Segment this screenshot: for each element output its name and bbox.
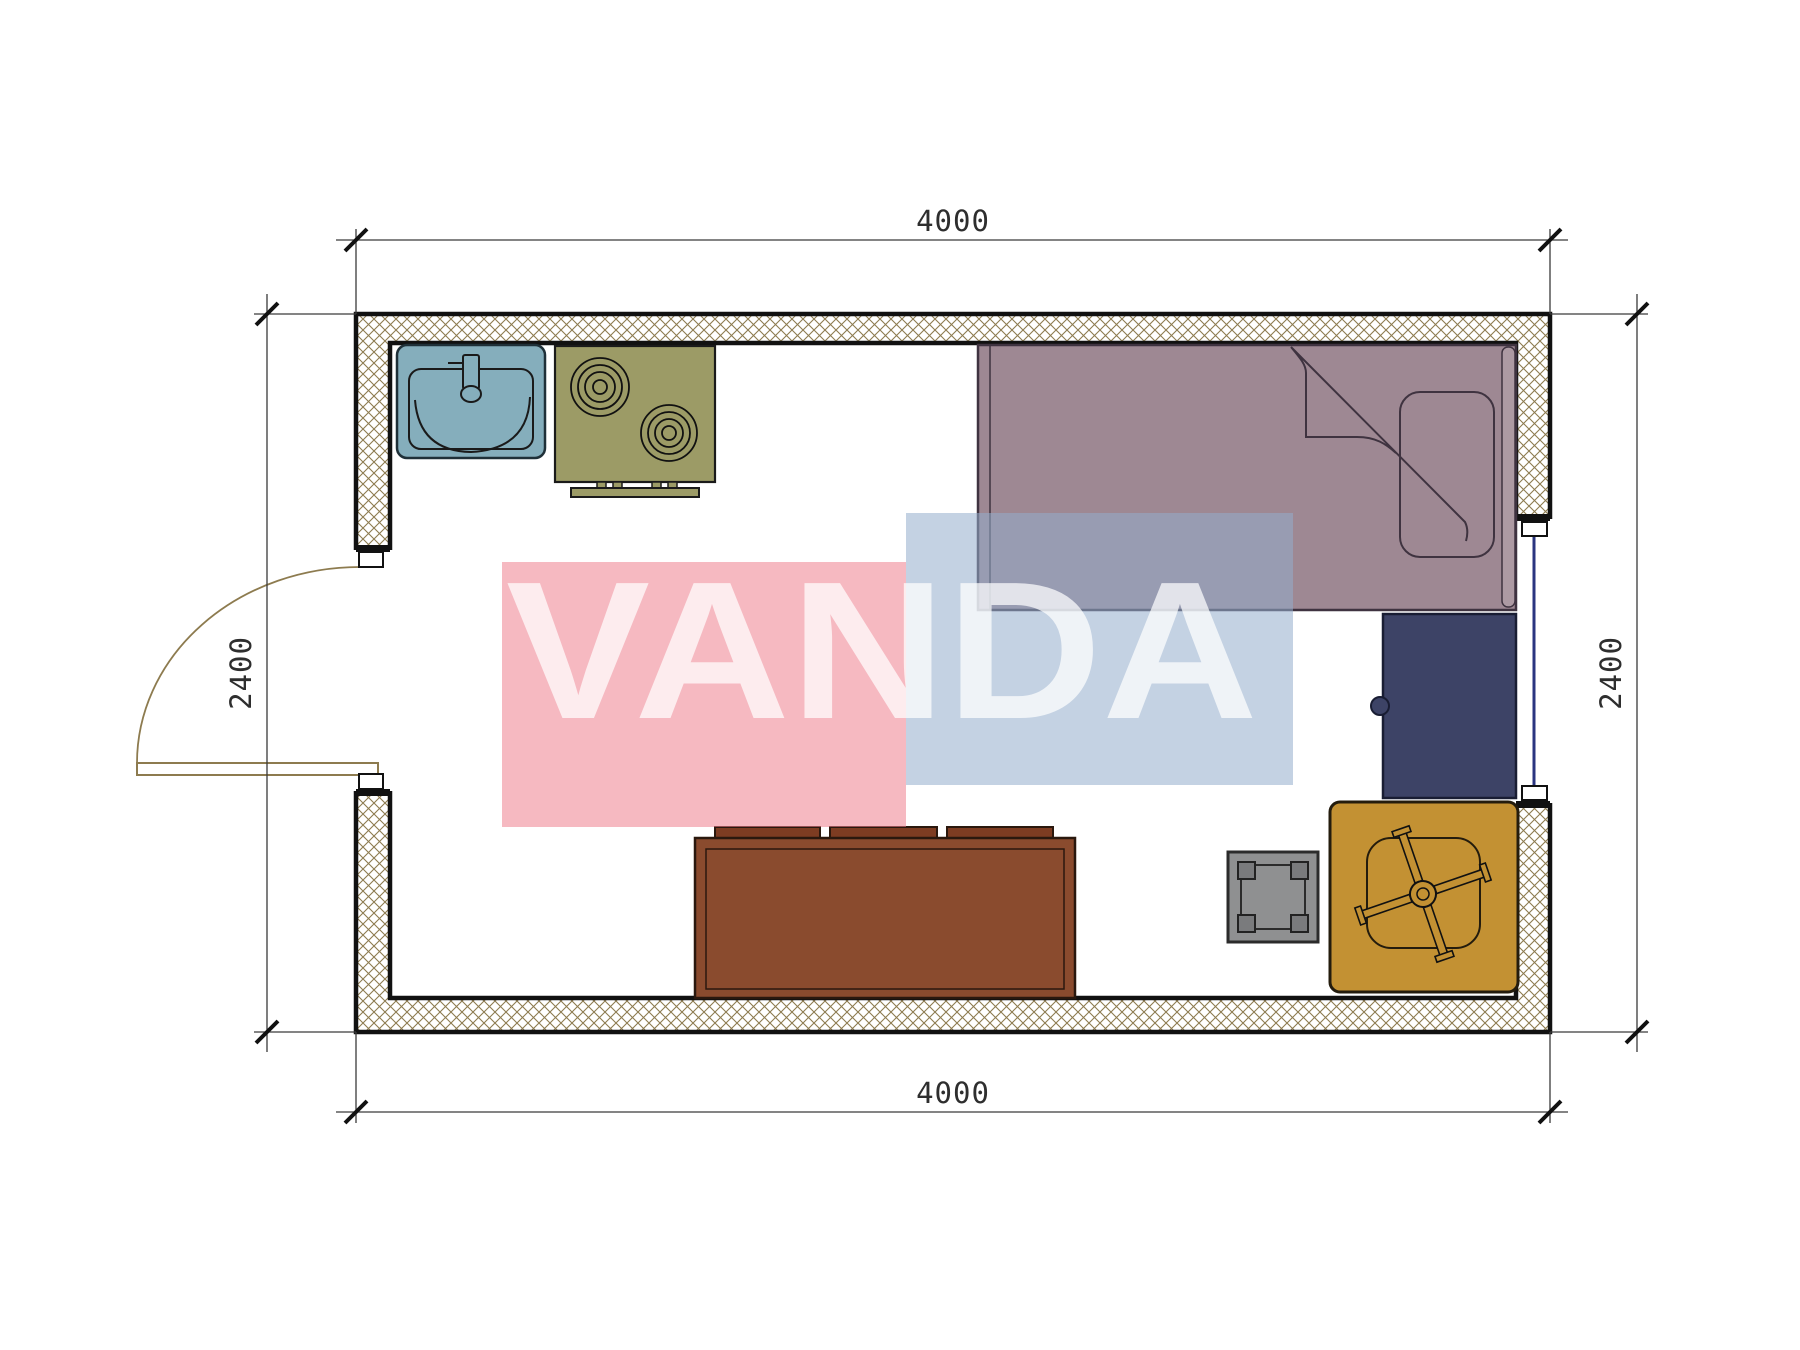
window-frame-cap-top [1522,522,1547,536]
wall-left-upper [356,343,390,546]
watermark: VANDA [502,513,1293,827]
floor-plan-page: 4000 4000 2400 2400 VANDA [0,0,1800,1350]
watermark-text: VANDA [506,541,1258,760]
sofa [695,827,1075,998]
wall-top [356,314,1550,343]
faucet-icon [463,355,479,389]
window [1522,522,1547,800]
door-jamb-cap-bottom [356,789,390,796]
desk [1371,614,1516,798]
dimension-left: 2400 [224,294,356,1052]
office-chair [1330,802,1518,992]
dimension-top: 4000 [336,204,1568,314]
floor-plan-drawing: 4000 4000 2400 2400 VANDA [0,0,1800,1350]
desk-knob [1371,697,1389,715]
window-jamb-cap-bottom [1516,801,1550,808]
side-table [1228,852,1318,942]
dimension-bottom: 4000 [336,1032,1568,1123]
wall-right-lower [1516,807,1550,998]
door-frame-cap-bottom [359,774,383,789]
entry-door [137,552,383,789]
stove-handle [571,488,699,497]
desk-top [1383,614,1516,798]
dimension-top-label: 4000 [916,204,990,238]
dimension-right-label: 2400 [1594,636,1628,710]
drain-icon [461,386,481,402]
window-frame-cap-bottom [1522,786,1547,800]
sink [397,345,545,458]
wall-bottom [356,998,1550,1032]
dimension-left-label: 2400 [224,636,258,710]
door-leaf [137,763,378,775]
bed-headboard [1502,347,1515,607]
wall-left-lower [356,795,390,998]
window-jamb-cap-top [1516,514,1550,521]
dimension-right: 2400 [1550,294,1648,1052]
wall-right-upper [1516,343,1550,515]
dimension-bottom-label: 4000 [916,1076,990,1110]
stove-cooktop [555,346,715,497]
pillow [1400,392,1494,557]
sofa-body [695,838,1075,998]
door-frame-cap-top [359,552,383,567]
door-jamb-cap-top [356,545,390,552]
